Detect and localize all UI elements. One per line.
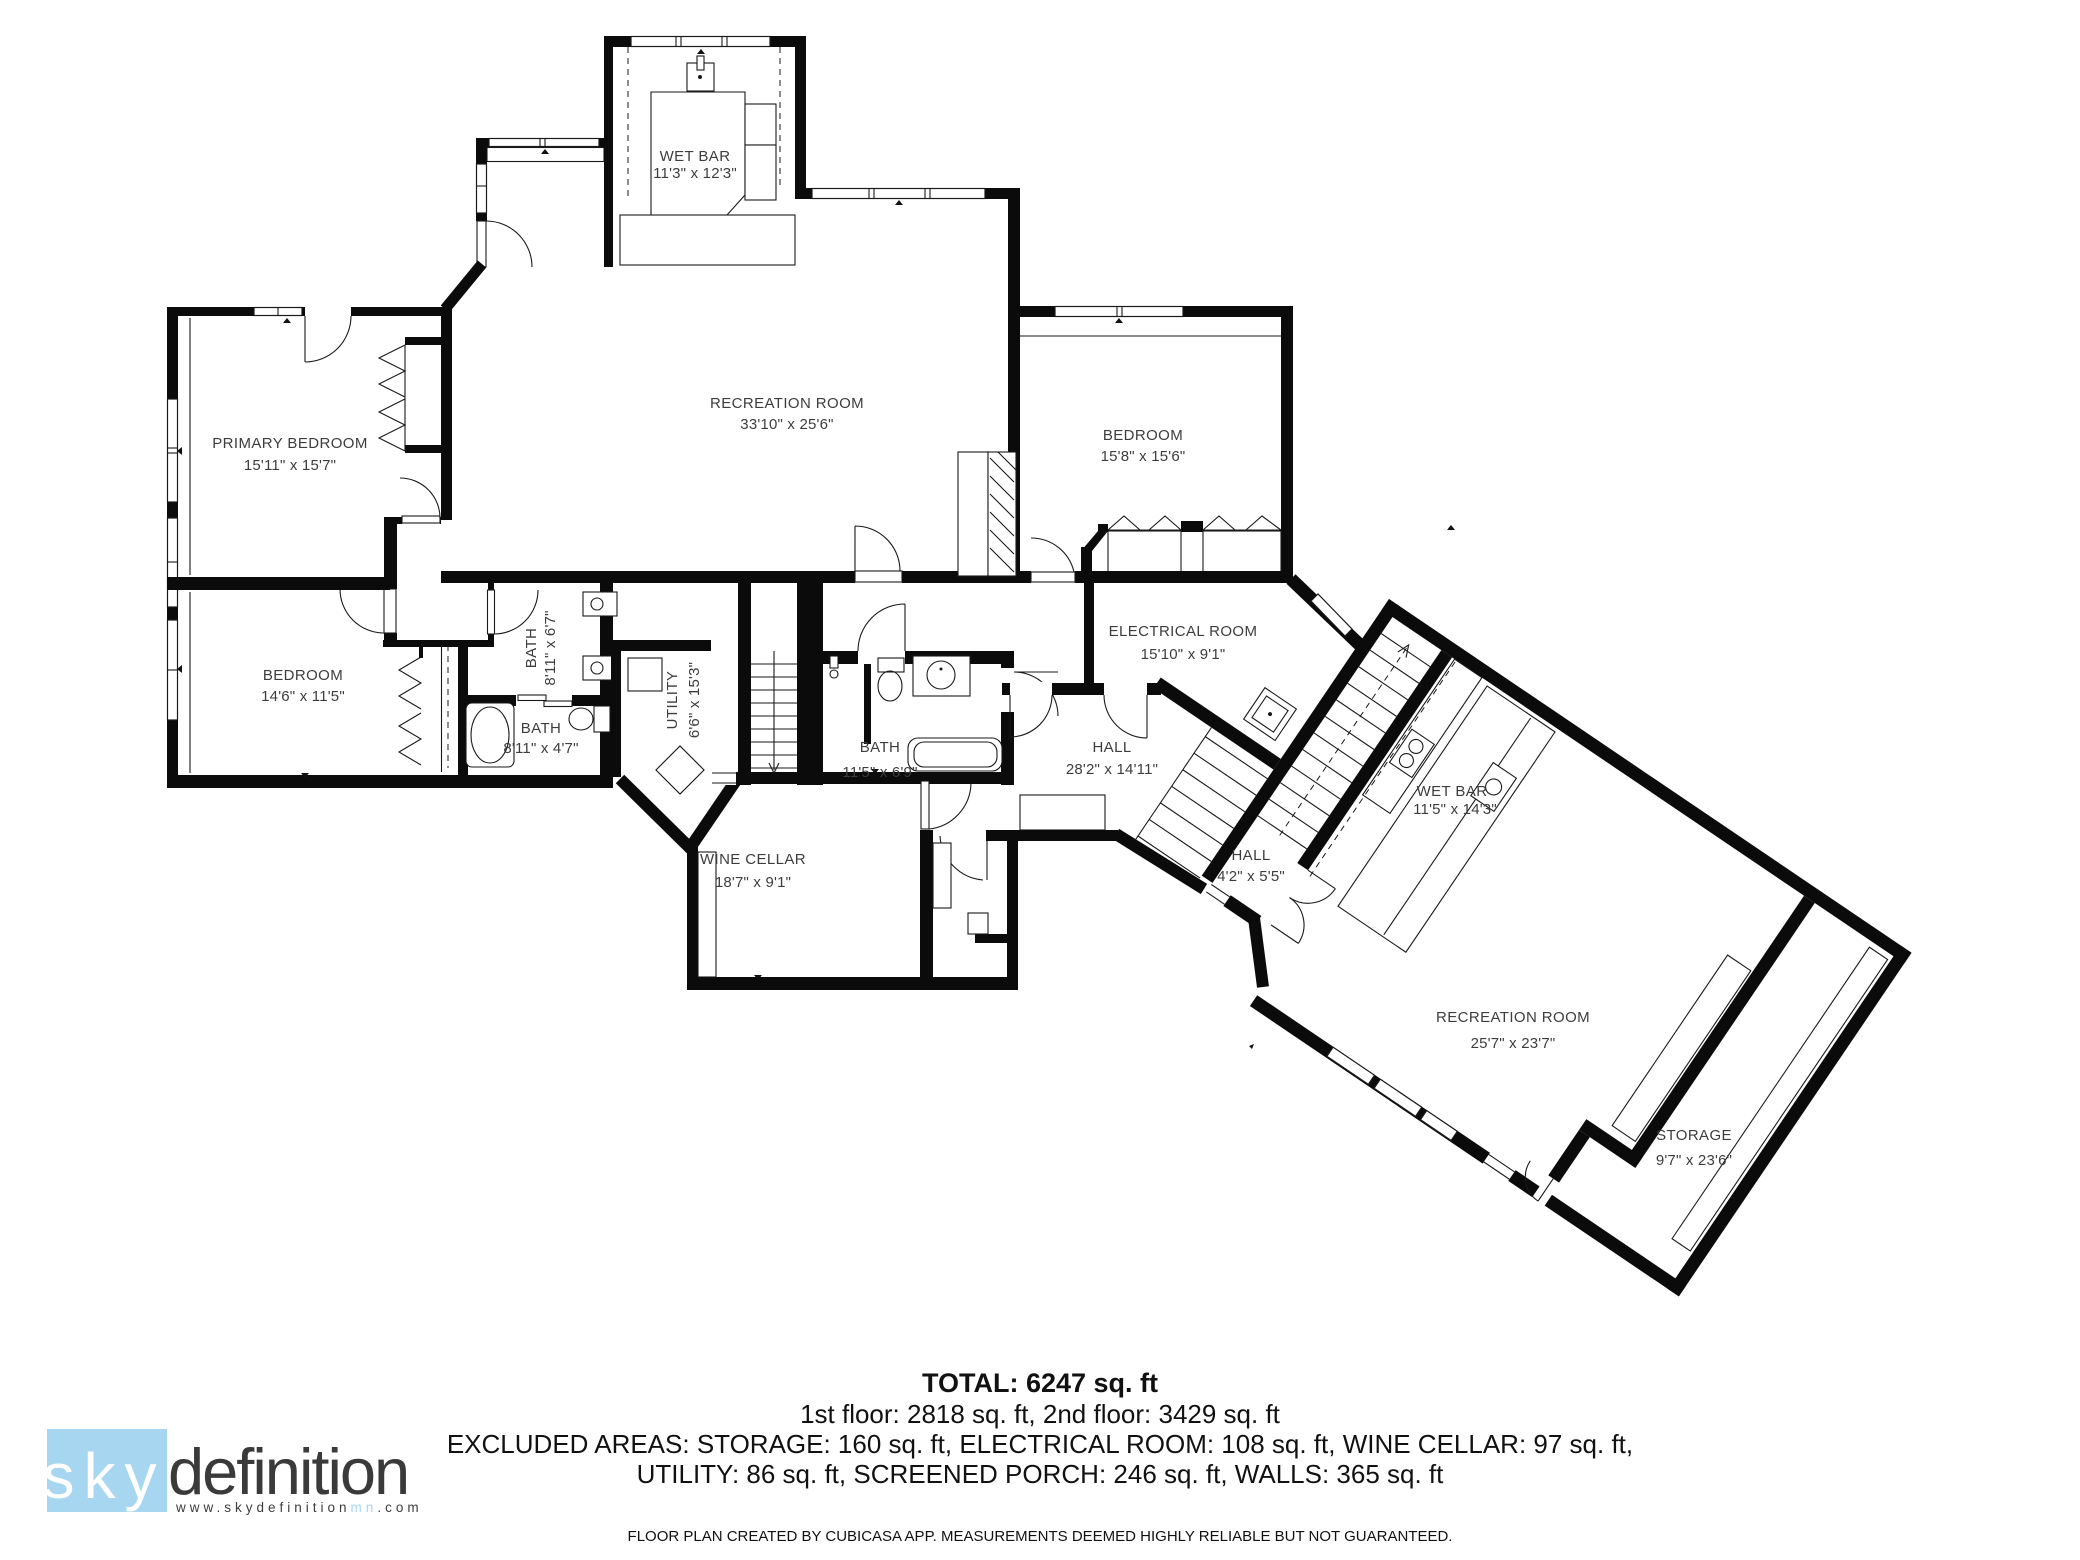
- svg-text:11'3" x 12'3": 11'3" x 12'3": [653, 165, 737, 182]
- svg-text:TOTAL: 6247 sq. ft: TOTAL: 6247 sq. ft: [922, 1368, 1158, 1398]
- svg-text:HALL: HALL: [1092, 739, 1131, 756]
- svg-text:8'11" x 6'7": 8'11" x 6'7": [542, 610, 559, 685]
- svg-text:1st floor: 2818 sq. ft, 2nd fl: 1st floor: 2818 sq. ft, 2nd floor: 3429 …: [800, 1399, 1281, 1429]
- svg-text:BATH: BATH: [860, 739, 901, 756]
- svg-text:28'2" x 14'11": 28'2" x 14'11": [1066, 761, 1158, 778]
- svg-text:FLOOR PLAN CREATED BY CUBICASA: FLOOR PLAN CREATED BY CUBICASA APP. MEAS…: [628, 1528, 1453, 1545]
- svg-text:WET BAR: WET BAR: [1417, 783, 1488, 800]
- svg-text:STORAGE: STORAGE: [1656, 1127, 1732, 1144]
- svg-text:RECREATION ROOM: RECREATION ROOM: [1436, 1009, 1590, 1026]
- svg-text:11'5" x 14'3": 11'5" x 14'3": [1413, 801, 1497, 818]
- svg-text:UTILITY: UTILITY: [664, 671, 681, 730]
- svg-text:definition: definition: [168, 1435, 408, 1508]
- svg-text:6'6" x 15'3": 6'6" x 15'3": [686, 662, 703, 738]
- svg-text:18'7" x 9'1": 18'7" x 9'1": [715, 874, 791, 891]
- svg-text:BEDROOM: BEDROOM: [1103, 427, 1183, 444]
- svg-text:www.skydefinitionmn.com: www.skydefinitionmn.com: [175, 1500, 423, 1515]
- svg-text:25'7" x 23'7": 25'7" x 23'7": [1471, 1035, 1556, 1052]
- svg-text:11'5" x 6'9": 11'5" x 6'9": [842, 764, 917, 781]
- svg-text:EXCLUDED AREAS: STORAGE: 160 s: EXCLUDED AREAS: STORAGE: 160 sq. ft, ELE…: [447, 1429, 1633, 1459]
- svg-text:WET BAR: WET BAR: [660, 148, 731, 165]
- svg-text:UTILITY: 86 sq. ft, SCREENED P: UTILITY: 86 sq. ft, SCREENED PORCH: 246 …: [637, 1459, 1445, 1489]
- svg-text:BEDROOM: BEDROOM: [263, 667, 343, 684]
- svg-text:4'2" x 5'5": 4'2" x 5'5": [1217, 868, 1285, 885]
- svg-text:15'8" x 15'6": 15'8" x 15'6": [1101, 448, 1186, 465]
- svg-text:HALL: HALL: [1231, 847, 1270, 864]
- svg-text:sky: sky: [43, 1440, 166, 1512]
- svg-text:BATH: BATH: [523, 628, 540, 669]
- svg-text:15'11" x 15'7": 15'11" x 15'7": [244, 457, 336, 474]
- svg-text:RECREATION ROOM: RECREATION ROOM: [710, 395, 864, 412]
- svg-text:9'7" x 23'6": 9'7" x 23'6": [1656, 1152, 1732, 1169]
- svg-text:14'6" x 11'5": 14'6" x 11'5": [261, 688, 345, 705]
- svg-text:BATH: BATH: [521, 720, 562, 737]
- svg-text:8'11" x 4'7": 8'11" x 4'7": [503, 740, 578, 757]
- svg-text:33'10" x 25'6": 33'10" x 25'6": [740, 416, 833, 433]
- svg-text:PRIMARY BEDROOM: PRIMARY BEDROOM: [212, 435, 367, 452]
- svg-text:15'10" x 9'1": 15'10" x 9'1": [1141, 646, 1226, 663]
- svg-text:ELECTRICAL ROOM: ELECTRICAL ROOM: [1109, 623, 1258, 640]
- svg-text:WINE CELLAR: WINE CELLAR: [700, 851, 806, 868]
